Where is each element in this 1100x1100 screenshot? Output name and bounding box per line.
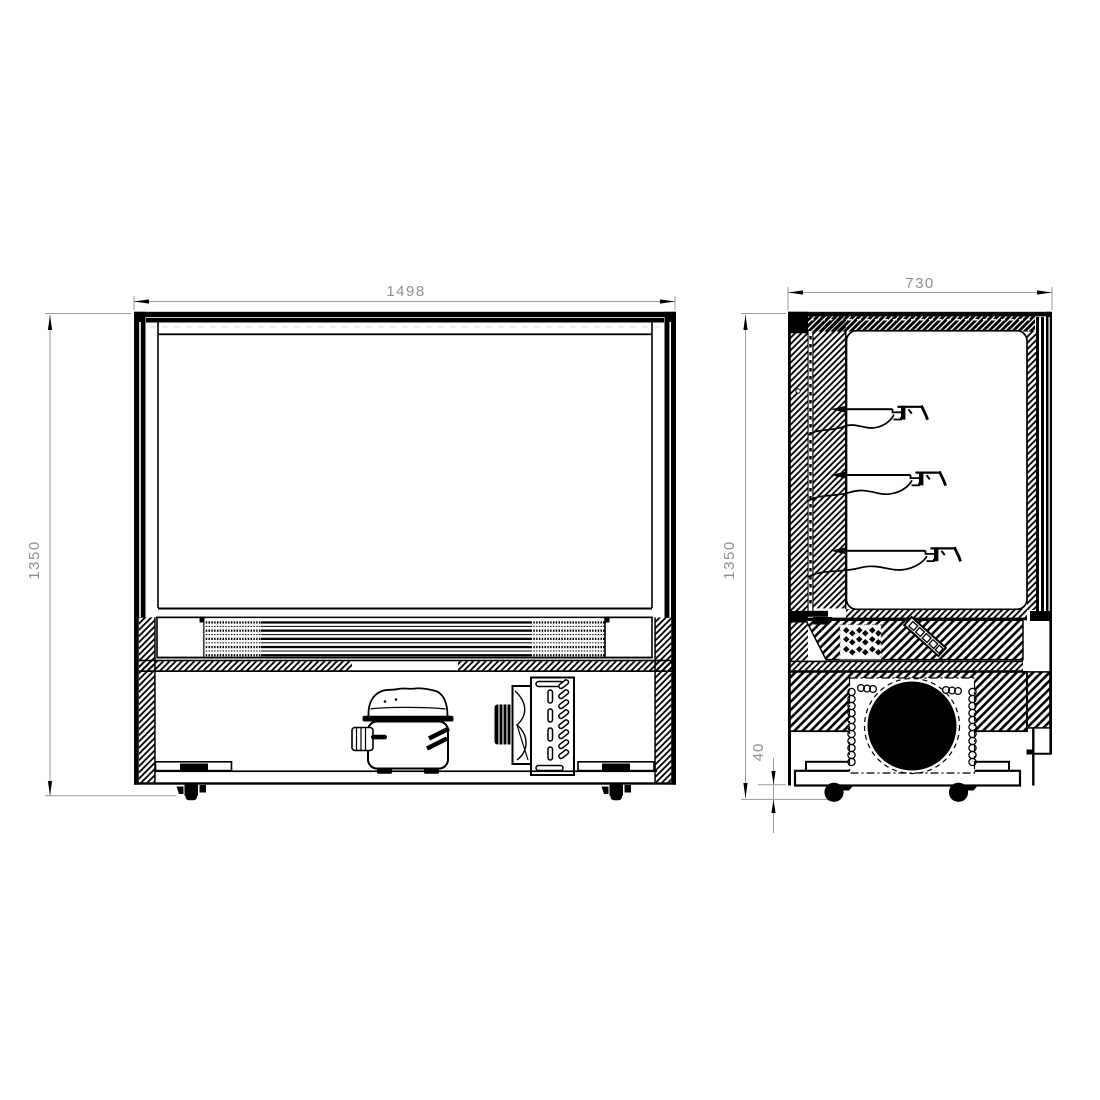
svg-text:40: 40 <box>750 743 767 762</box>
svg-text:730: 730 <box>905 275 935 292</box>
svg-text:1350: 1350 <box>721 540 738 579</box>
svg-text:1350: 1350 <box>26 540 43 579</box>
svg-text:1498: 1498 <box>386 283 425 300</box>
